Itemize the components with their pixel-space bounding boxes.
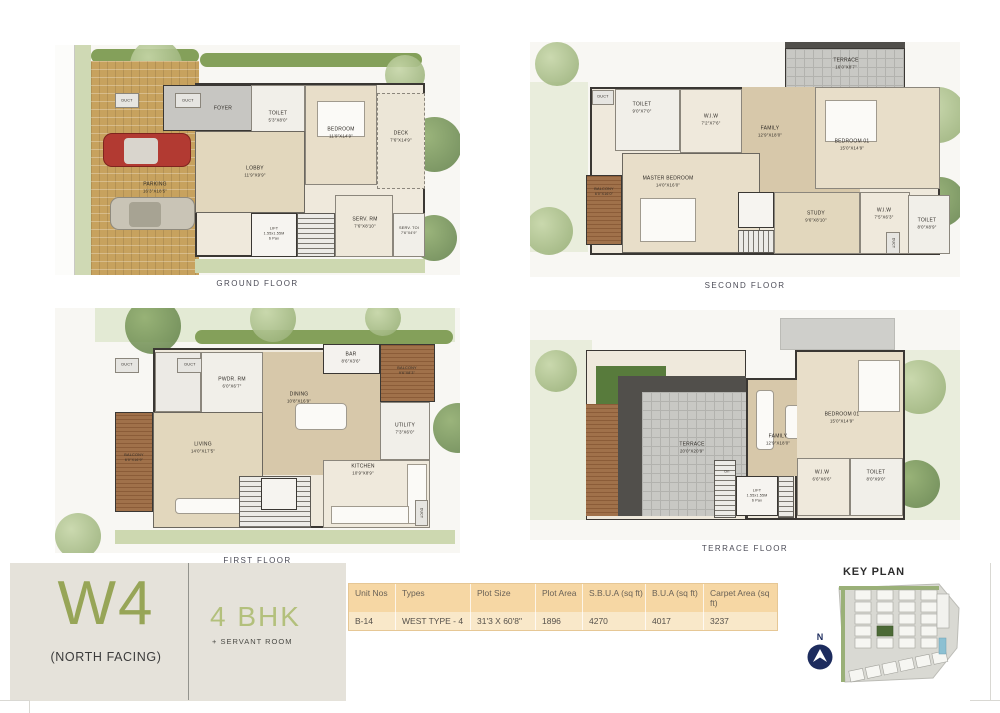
room-label-master-bedroom: MASTER BEDROOM14'0"X16'0": [643, 176, 694, 189]
room-dims: 16'3"X18'5": [143, 188, 167, 194]
room-name: LOBBY: [246, 166, 264, 173]
room-dims: 10'9"X8'9": [352, 470, 374, 476]
room-label-toilet: TOILET5'3"X8'0": [269, 111, 288, 124]
room-dims: 8'0"X8'9": [918, 224, 937, 230]
room-name: BAR: [346, 352, 357, 359]
room-dims: 7'6"X14'9": [390, 137, 412, 143]
room-name: DUCT: [597, 94, 608, 99]
room-name: W.I.W: [815, 470, 829, 477]
unit-facing: (NORTH FACING): [26, 650, 186, 664]
room-dims: 16'0"X8'7": [835, 64, 857, 70]
road-strip: [55, 45, 75, 275]
roof-area: [780, 318, 895, 350]
room-dims: 20'0"X20'9": [680, 448, 704, 454]
room-dims: 6'0"X6'7": [223, 383, 242, 389]
room-label-balcony1: BALCONY6'0"X16'9": [124, 453, 144, 463]
room-dims: 7'5"X6'3": [875, 214, 894, 220]
room-name: DUCT: [419, 508, 424, 518]
room-name: SERV. RM: [352, 217, 377, 224]
room-name: BEDROOM 01: [825, 412, 860, 419]
toilet-room: [850, 458, 903, 516]
room-dims: 10'8"X16'9": [287, 398, 311, 404]
cell-plot-size: 31'3 X 60'8": [471, 612, 536, 630]
room-label-bedroom: BEDROOM11'9"X14'9": [327, 127, 354, 140]
col-header: S.B.U.A (sq ft): [583, 584, 646, 612]
col-header: Plot Size: [471, 584, 536, 612]
room-dims: 6'0"X16'9": [125, 458, 143, 463]
col-header: Plot Area: [536, 584, 583, 612]
spec-table-row: B-14 WEST TYPE - 4 31'3 X 60'8" 1896 427…: [349, 612, 777, 630]
caption-second-floor: SECOND FLOOR: [530, 281, 960, 290]
room-dims: 7'6"X4'9": [401, 231, 417, 236]
hedge: [195, 330, 453, 344]
room-dims: 6'6"X6'6": [813, 476, 832, 482]
lawn: [195, 259, 425, 273]
room-label-toilet: TOILET9'0"X7'0": [633, 102, 652, 115]
room-label-duct: DUCT: [419, 508, 424, 518]
key-plan-title: KEY PLAN: [843, 566, 905, 578]
toilet-room: [615, 89, 680, 151]
room-name: DUCT: [121, 98, 132, 103]
car-red: [103, 133, 191, 167]
room-label-deck: DECK7'6"X14'9": [390, 131, 412, 144]
spec-table: Unit Nos Types Plot Size Plot Area S.B.U…: [348, 583, 778, 631]
room-name: TOILET: [918, 218, 937, 225]
room-name: DINING: [290, 392, 309, 399]
room-label-lift: LIFT1.55x1.55M6 Pax: [264, 227, 285, 242]
car-silver: [110, 197, 195, 230]
first-floor-plan: DUCT DUCT PWDR. RM6'0"X6'7" BAR8'6"X3'6"…: [55, 308, 460, 553]
room-label-living: LIVING14'0"X17'5": [191, 442, 215, 455]
gravel-border: [618, 376, 746, 392]
room-label-pwdr: PWDR. RM6'0"X6'7": [218, 377, 245, 390]
second-floor-plan: TERRACE16'0"X8'7" DUCT TOILET9'0"X7'0" W…: [530, 42, 960, 277]
room-name: TOILET: [867, 470, 886, 477]
tree: [535, 350, 577, 392]
wood-deck: [586, 404, 618, 516]
lift-shaft: [738, 192, 774, 228]
room-dims: 7'6"X8'10": [354, 223, 376, 229]
room-label-wiw2: W.I.W7'5"X6'3": [875, 208, 894, 221]
room-capacity: 6 Pax: [752, 499, 762, 504]
green-verge: [75, 45, 91, 275]
room-name: DUCT: [891, 238, 896, 248]
room-label-duct: DUCT: [891, 238, 896, 248]
room-label-dn: Dn: [724, 469, 729, 474]
crop-mark: [0, 700, 30, 701]
room-dims: 8'0"X9'0": [867, 476, 886, 482]
brochure-page: DUCT DUCT FOYER TOILET5'3"X8'0" BEDROOM1…: [0, 0, 1000, 713]
room-dims: 5'3"X8'0": [269, 117, 288, 123]
room-label-study: STUDY9'6"X8'10": [805, 211, 827, 224]
room-dims: 11'9"X9'9": [244, 172, 265, 178]
car-windshield: [129, 202, 161, 227]
room-name: PWDR. RM: [218, 377, 245, 384]
room-label-bedroom01: BEDROOM 0115'0"X14'9": [835, 139, 870, 152]
crop-mark: [970, 700, 1000, 701]
balcony-area: [586, 175, 622, 245]
room-label-lobby: LOBBY11'9"X9'9": [244, 166, 265, 179]
room-name: FAMILY: [769, 434, 788, 441]
room-label-utility: UTILITY7'3"X6'0": [395, 423, 415, 436]
cell-sbua: 4270: [583, 612, 646, 630]
room-name: Dn: [724, 469, 729, 474]
tree: [535, 42, 579, 86]
col-header: B.U.A (sq ft): [646, 584, 704, 612]
lift-shaft: [261, 478, 297, 510]
col-header: Types: [396, 584, 471, 612]
lawn: [115, 530, 455, 544]
room-label-terrace: TERRACE20'0"X20'9": [679, 442, 704, 455]
room-label-family: FAMILY12'9"X18'0": [758, 126, 782, 139]
room-label-toilet: TOILET8'0"X9'0": [867, 470, 886, 483]
room-name: LIVING: [194, 442, 212, 449]
room-name: TERRACE: [833, 58, 858, 65]
caption-ground-floor: GROUND FLOOR: [55, 279, 460, 288]
wiw-room: [797, 458, 850, 516]
room-name: KITCHEN: [351, 464, 374, 471]
room-name: DUCT: [182, 98, 193, 103]
room-label-balcony: BALCONY6'0"X16'0": [594, 187, 614, 197]
cell-type: WEST TYPE - 4: [396, 612, 471, 630]
key-plan-map: [833, 582, 963, 692]
room-dims: 9'0"X7'0": [633, 108, 652, 114]
room-name: PARKING: [143, 182, 167, 189]
bed: [825, 100, 877, 142]
room-dims: 9'6"X8'3": [399, 371, 415, 376]
room-label-terrace: TERRACE16'0"X8'7": [833, 58, 858, 71]
room-name: BEDROOM: [327, 127, 354, 134]
stairs: [778, 476, 794, 518]
room-label-lift: LIFT1.55x1.55M6 Pax: [747, 489, 768, 504]
room-name: FAMILY: [761, 126, 780, 133]
room-dims: 11'9"X14'9": [329, 133, 353, 139]
compass-n-label: N: [806, 632, 834, 642]
room-label-duct: DUCT: [597, 94, 608, 99]
room-dims: 15'0"X14'9": [830, 418, 854, 424]
unit-type-sub: + SERVANT ROOM: [212, 637, 292, 646]
room-name: DUCT: [184, 362, 195, 367]
cell-carpet-area: 3237: [704, 612, 777, 630]
room-name: W.I.W: [877, 208, 891, 215]
ground-floor-plan: DUCT DUCT FOYER TOILET5'3"X8'0" BEDROOM1…: [55, 45, 460, 275]
caption-terrace-floor: TERRACE FLOOR: [530, 544, 960, 553]
room-dims: 12'9"X18'0": [758, 132, 782, 138]
pool: [939, 638, 946, 654]
room-name: BEDROOM 01: [835, 139, 870, 146]
tree: [433, 403, 460, 453]
room-label-bedroom01: BEDROOM 0115'0"X14'9": [825, 412, 860, 425]
dining-table: [295, 403, 347, 430]
room-dims: 15'0"X14'9": [840, 145, 864, 151]
compass-icon: [807, 644, 833, 670]
room-name: TOILET: [269, 111, 288, 118]
room-label-family: FAMILY12'9"X18'0": [766, 434, 790, 447]
cell-unit-no: B-14: [349, 612, 396, 630]
room-name: MASTER BEDROOM: [643, 176, 694, 183]
terrace-floor-plan: TERRACE20'0"X20'9" FAMILY12'9"X18'0" LIF…: [530, 310, 960, 540]
room-dims: 14'0"X17'5": [191, 448, 215, 454]
room-label-kitchen: KITCHEN10'9"X8'9": [351, 464, 374, 477]
room-dims: 7'2"X7'6": [702, 120, 721, 126]
crop-mark: [990, 563, 991, 700]
room-capacity: 6 Pax: [269, 237, 279, 242]
spec-table-header: Unit Nos Types Plot Size Plot Area S.B.U…: [349, 584, 777, 612]
room-name: STUDY: [807, 211, 825, 218]
unit-type: 4 BHK: [210, 601, 301, 633]
room-label-serv-rm: SERV. RM7'6"X8'10": [352, 217, 377, 230]
room-label-duct: DUCT: [121, 362, 132, 367]
highlighted-unit: [877, 626, 893, 636]
room-label-foyer: FOYER: [214, 106, 232, 113]
divider: [188, 563, 189, 700]
room-dims: 8'6"X3'6": [342, 358, 361, 364]
room-name: DECK: [394, 131, 409, 138]
col-header: Unit Nos: [349, 584, 396, 612]
key-plan-svg: [833, 582, 963, 692]
room-dims: 6'0"X16'0": [595, 192, 613, 197]
cell-bua: 4017: [646, 612, 704, 630]
col-header: Carpet Area (sq ft): [704, 584, 777, 612]
kitchen-counter: [331, 506, 409, 524]
bed: [858, 360, 900, 412]
wiw-room: [860, 192, 910, 254]
room-dims: 12'9"X18'0": [766, 440, 790, 446]
gravel-border: [618, 392, 642, 516]
room-label-wiw: W.I.W7'2"X7'6": [702, 114, 721, 127]
room-label-bar: BAR8'6"X3'6": [342, 352, 361, 365]
room-dims: 9'6"X8'10": [805, 217, 827, 223]
room-name: FOYER: [214, 106, 232, 113]
tree: [55, 513, 101, 553]
cell-plot-area: 1896: [536, 612, 583, 630]
room-label-duct: DUCT: [182, 98, 193, 103]
room-name: DUCT: [121, 362, 132, 367]
room-name: TERRACE: [679, 442, 704, 449]
room-label-parking: PARKING16'3"X18'5": [143, 182, 167, 195]
room-label-duct: DUCT: [184, 362, 195, 367]
crop-mark: [29, 700, 30, 713]
room-label-toilet2: TOILET8'0"X8'9": [918, 218, 937, 231]
room-dims: 7'3"X6'0": [396, 429, 415, 435]
room-label-duct: DUCT: [121, 98, 132, 103]
room-name: W.I.W: [704, 114, 718, 121]
room-name: TOILET: [633, 102, 652, 109]
car-windshield: [124, 138, 158, 164]
bed: [640, 198, 696, 242]
unit-code: W4: [26, 570, 186, 638]
room-label-balcony2: BALCONY9'6"X8'3": [397, 366, 417, 376]
stairs: [297, 213, 335, 257]
room-label-wiw: W.I.W6'6"X6'6": [813, 470, 832, 483]
room-dims: 14'0"X16'0": [656, 182, 680, 188]
foyer-area: [163, 85, 260, 131]
room-label-dining: DINING10'8"X16'9": [287, 392, 311, 405]
room-name: UTILITY: [395, 423, 415, 430]
room-label-serv-toi: SERV. TOI7'6"X4'9": [399, 226, 419, 236]
